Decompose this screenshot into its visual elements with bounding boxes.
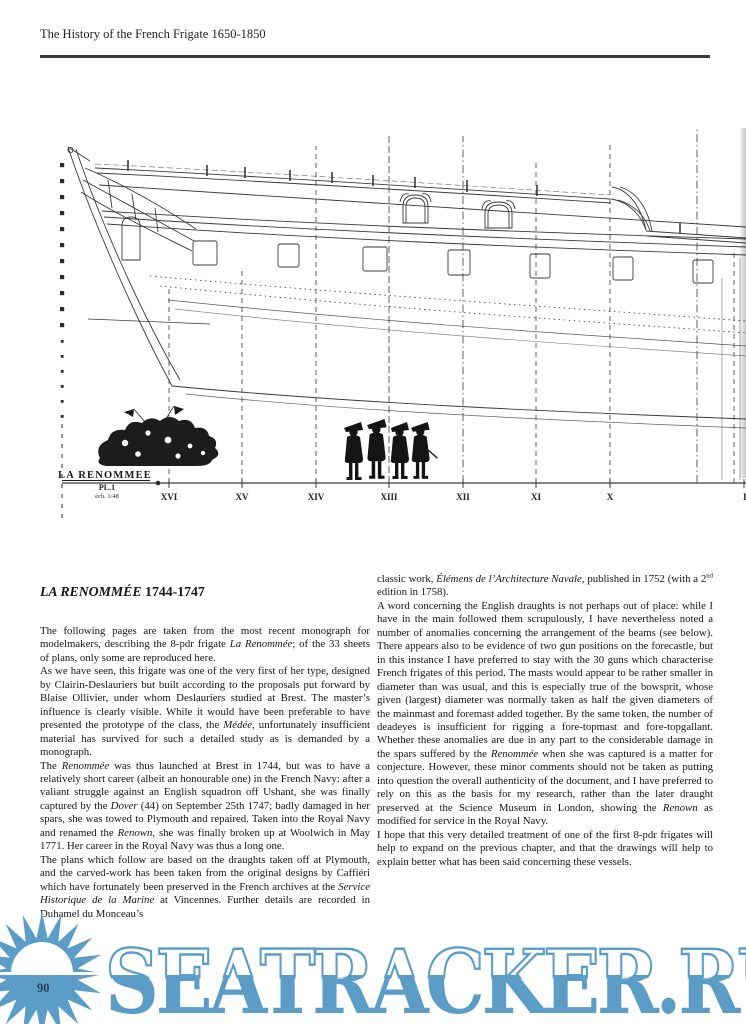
- article-heading-name: LA RENOMMÉE: [40, 584, 142, 599]
- article-heading: LA RENOMMÉE 1744-1747: [40, 584, 370, 600]
- sheer-lines: [88, 164, 746, 428]
- cartouche-vignette: [98, 406, 218, 466]
- article-heading-dates: 1744-1747: [145, 584, 205, 599]
- book-page: The History of the French Frigate 1650-1…: [0, 0, 746, 1024]
- plan-scale-note: éch. 1/48: [95, 493, 119, 500]
- right-paragraphs: classic work, Élémens de l’Architecture …: [377, 573, 713, 869]
- station-label: XIII: [380, 492, 398, 502]
- article-left-column: LA RENOMMÉE 1744-1747 The following page…: [40, 584, 370, 921]
- plan-plate-number: PL.1: [99, 483, 115, 492]
- running-header: The History of the French Frigate 1650-1…: [40, 27, 266, 42]
- page-gutter-shadow: [739, 128, 746, 478]
- left-paragraphs: The following pages are taken from the m…: [40, 625, 370, 921]
- paragraph: A word concerning the English draughts i…: [377, 600, 713, 829]
- scale-dot-column: [60, 163, 64, 418]
- ship-sheer-plan: LA RENOMMEE PL.1 éch. 1/48: [0, 128, 746, 528]
- station-label: XIV: [308, 492, 325, 502]
- paragraph: The plans which follow are based on the …: [40, 854, 370, 921]
- paragraph: The following pages are taken from the m…: [40, 625, 370, 665]
- station-labels: XVI XV XIV XIII XII XI X IX: [161, 492, 746, 502]
- bow-structure: [68, 147, 196, 386]
- station-label: XII: [456, 492, 470, 502]
- paragraph: As we have seen, this frigate was one of…: [40, 665, 370, 759]
- paragraph: classic work, Élémens de l’Architecture …: [377, 573, 713, 600]
- watermark: SEATRACKER.RU SEATRACKER.RU: [105, 938, 746, 1024]
- station-label: X: [607, 492, 614, 502]
- paragraph: I hope that this very detailed treatment…: [377, 829, 713, 869]
- paragraph: The Renommée was thus launched at Brest …: [40, 760, 370, 854]
- baseline: [62, 479, 746, 488]
- figures-vignette: [344, 419, 437, 480]
- station-label: XV: [236, 492, 249, 502]
- station-label: XI: [531, 492, 541, 502]
- page-number: 90: [37, 981, 50, 996]
- article-right-column: classic work, Élémens de l’Architecture …: [377, 573, 713, 869]
- plan-title: LA RENOMMEE: [58, 470, 152, 481]
- sun-logo: [0, 912, 110, 1024]
- station-label: XVI: [161, 492, 178, 502]
- header-rule: [40, 55, 710, 58]
